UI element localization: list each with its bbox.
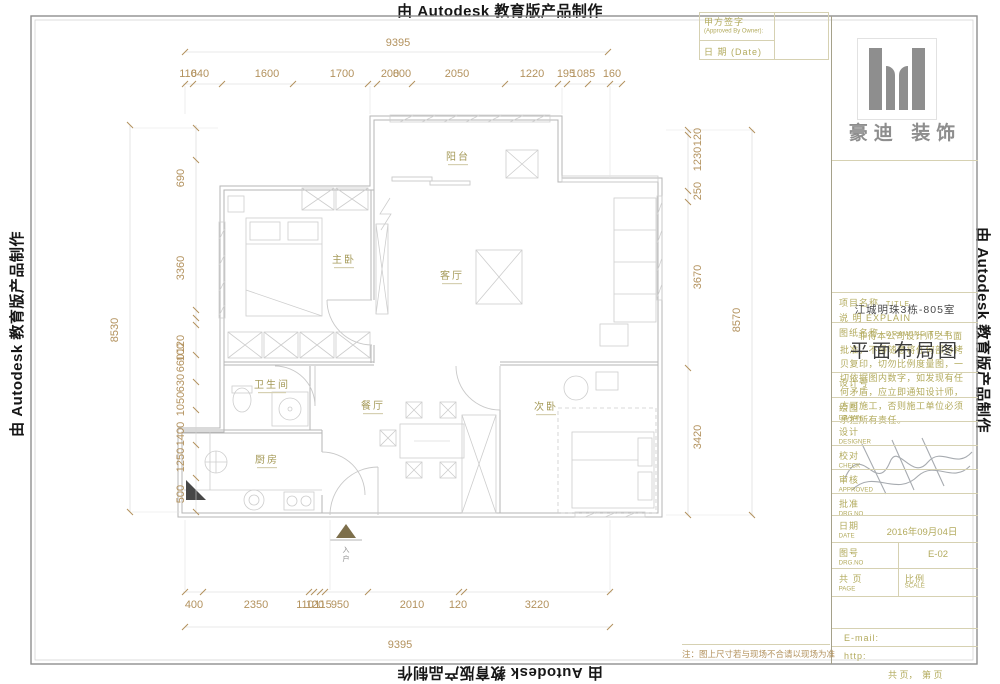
entry-marker: [330, 524, 362, 540]
dim-right-total: 8570: [731, 308, 743, 332]
furniture-dining-room: [380, 402, 496, 513]
dim: 2050: [445, 68, 469, 80]
room-label-kitchen: 厨房: [255, 453, 279, 466]
dimension-ticks: [127, 49, 755, 630]
dim: 3220: [525, 599, 549, 611]
pages-footer: 共 页， 第 页: [888, 668, 980, 681]
wardrobe: [228, 332, 370, 358]
explain-section: 说 明 EXPLAIN 非得本公司设计师之书面批准，不得随意将任何部分拷贝复印，…: [832, 160, 978, 308]
sign-table-divider: [774, 13, 775, 59]
dim-left-total: 8530: [109, 318, 121, 342]
room-label-dining: 餐厅: [361, 399, 385, 412]
owner-sign-label: 甲方签字: [704, 15, 774, 28]
sign-date-row: 日 期 (Date): [700, 41, 774, 61]
logo-bar: [899, 66, 908, 110]
design-no-label: 设计号: [832, 373, 978, 389]
dim: 3360: [175, 256, 187, 280]
drawn-row: 绘图 DRAWN: [832, 397, 978, 421]
dim: 1400: [175, 422, 187, 446]
dim: 1230: [692, 147, 704, 171]
dim: 800: [393, 68, 411, 80]
dim: 3420: [692, 425, 704, 449]
http-label: http:: [844, 651, 867, 661]
furniture-balcony: [506, 150, 658, 182]
dim: 950: [331, 599, 349, 611]
dim: 660: [175, 354, 187, 372]
check-row: 校对 CHECK: [832, 445, 978, 469]
dim: 3670: [692, 265, 704, 289]
room-label-second: 次卧: [534, 400, 558, 413]
dim: 250: [692, 182, 704, 200]
approved-label: 审核: [832, 470, 978, 486]
dim: 2010: [400, 599, 424, 611]
dim: 120: [449, 599, 467, 611]
furniture-second-bedroom: [558, 372, 656, 513]
dim: 120: [692, 128, 704, 146]
company-name: 豪迪 装饰: [832, 118, 978, 145]
dim: 1220: [520, 68, 544, 80]
dim: 500: [175, 485, 187, 503]
dim: 1085: [571, 68, 595, 80]
date-value: 2016年09月04日: [866, 524, 978, 538]
entry-label: 入户: [340, 546, 350, 564]
dim: 690: [175, 169, 187, 187]
owner-sign-table: 甲方签字 (Approved By Owner): 日 期 (Date): [699, 12, 829, 60]
furniture-living-room: [376, 198, 656, 346]
furniture-kitchen: [184, 432, 322, 510]
dim: 640: [191, 68, 209, 80]
drawing-name: 平面布局图: [832, 336, 978, 363]
design-no-row: 设计号: [832, 372, 978, 397]
scale-label-en: SCALE: [898, 582, 925, 590]
logo-bar: [912, 48, 925, 110]
ratify-label: 批准: [832, 494, 978, 510]
room-label-balcony: 阳台: [446, 150, 470, 163]
drg-no-value: E-02: [898, 549, 978, 560]
room-labels: 阳台 主卧 客厅 卫生间 餐厅 次卧 厨房: [254, 150, 558, 468]
approved-row: 审核 APPROVED: [832, 469, 978, 493]
room-label-master: 主卧: [332, 253, 356, 266]
ratify-row: 批准 DRG NO: [832, 493, 978, 515]
dim: 160: [603, 68, 621, 80]
dim: 400: [185, 599, 203, 611]
http-row: http:: [832, 646, 978, 664]
company-logo: [857, 38, 937, 120]
dim: 1050: [175, 392, 187, 416]
email-label: E-mail:: [844, 633, 879, 643]
page-scale-row: 共 页 PAGE 比例 SCALE: [832, 568, 978, 596]
dim: 1250: [175, 448, 187, 472]
dim: 1600: [255, 68, 279, 80]
dim: 2350: [244, 599, 268, 611]
site-note: 注：图上尺寸若与现场不合请以现场为准: [682, 644, 830, 660]
room-label-bath: 卫生间: [254, 378, 290, 391]
check-label: 校对: [832, 446, 978, 462]
logo-bar: [886, 66, 895, 110]
drawing-sheet: 由 Autodesk 教育版产品制作 由 Autodesk 教育版产品制作 由 …: [0, 0, 1000, 684]
dim-bottom-total: 9395: [388, 639, 412, 651]
room-label-living: 客厅: [440, 269, 464, 282]
designer-label: 设计: [832, 422, 978, 438]
drawn-label: 绘图: [832, 398, 978, 414]
logo-bar: [869, 48, 882, 110]
furniture-master-bedroom: [228, 188, 370, 358]
dim: 1700: [330, 68, 354, 80]
project-name: 江城明珠3栋-805室: [832, 302, 978, 317]
sign-date-label: 日 期 (Date): [704, 47, 762, 57]
dim: 630: [175, 374, 187, 392]
designer-row: 设计 DESIGNER: [832, 421, 978, 445]
owner-sign-row: 甲方签字 (Approved By Owner):: [700, 13, 774, 41]
drg-no-label-en: DRG.NO: [832, 559, 971, 567]
owner-sign-label-en: (Approved By Owner):: [704, 28, 768, 34]
dim: 115: [314, 599, 332, 611]
email-row: E-mail:: [832, 628, 978, 646]
dim-top-total: 9395: [386, 37, 410, 49]
blank-row: [832, 596, 978, 628]
title-block: 豪迪 装饰 说 明 EXPLAIN 非得本公司设计师之书面批准，不得随意将任何部…: [831, 16, 977, 664]
dimension-text: 9395 110 640 1600 1700 200 800 2050 1220…: [109, 37, 743, 651]
